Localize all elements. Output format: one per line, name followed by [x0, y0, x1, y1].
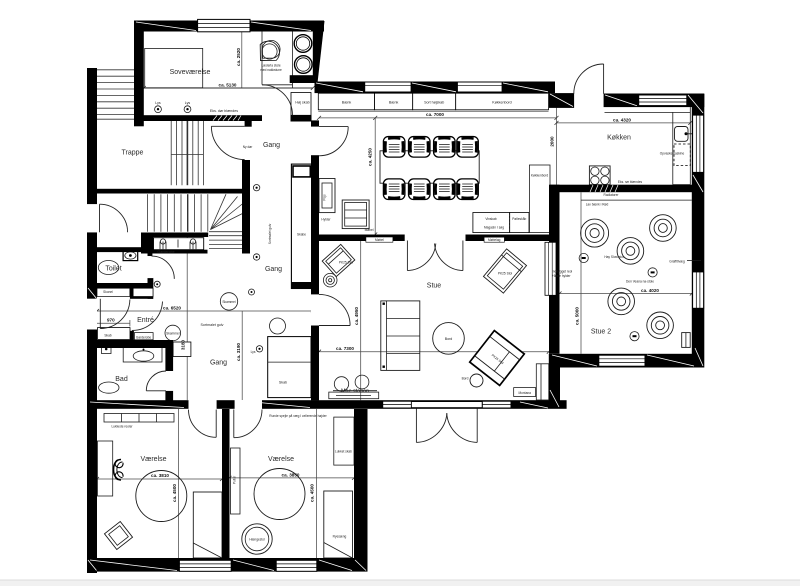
svg-text:Høj skab: Høj skab	[295, 101, 309, 105]
svg-text:2000: 2000	[550, 136, 555, 147]
svg-text:Køkken: Køkken	[607, 135, 631, 142]
svg-text:ca. 5130: ca. 5130	[219, 83, 237, 88]
svg-text:Køkkenbord: Køkkenbord	[531, 174, 548, 178]
svg-text:PK25 Stol: PK25 Stol	[498, 272, 512, 276]
svg-text:Entré: Entré	[137, 317, 154, 324]
svg-text:Hylder: Hylder	[321, 218, 331, 222]
svg-text:Magasin I søg: Magasin I søg	[484, 226, 504, 230]
svg-text:Sort højskab: Sort højskab	[424, 101, 444, 105]
svg-text:Møbel: Møbel	[375, 238, 384, 242]
svg-text:ca. 4020: ca. 4020	[641, 288, 659, 293]
svg-text:970: 970	[107, 318, 115, 323]
svg-text:Garderobe: Garderobe	[157, 250, 174, 254]
svg-text:Lukkede reoler: Lukkede reoler	[111, 425, 133, 429]
svg-text:Lys: Lys	[251, 350, 256, 354]
svg-text:Sortmalet gulv: Sortmalet gulv	[268, 223, 272, 244]
svg-text:Værelse: Værelse	[268, 456, 294, 463]
svg-text:Pejs: Pejs	[323, 194, 327, 201]
svg-text:Gang: Gang	[263, 142, 280, 149]
svg-text:Eks. rør blændes: Eks. rør blændes	[618, 180, 643, 184]
svg-text:ca. 4320: ca. 4320	[613, 117, 631, 122]
svg-text:Bad: Bad	[115, 376, 128, 383]
svg-text:Hængestol: Hængestol	[249, 538, 265, 542]
svg-text:Lukket skab: Lukket skab	[335, 450, 352, 454]
svg-text:Lys: Lys	[155, 101, 161, 105]
svg-text:Bænk: Bænk	[342, 101, 352, 105]
svg-text:Stue: Stue	[427, 283, 442, 290]
svg-text:Værelse: Værelse	[140, 456, 166, 463]
svg-text:Skammel: Skammel	[222, 300, 236, 304]
svg-text:ca. 4250: ca. 4250	[368, 148, 373, 166]
svg-text:ca. 7000: ca. 7000	[426, 112, 444, 117]
svg-text:Vinskab: Vinskab	[485, 217, 497, 221]
svg-text:Gang: Gang	[265, 266, 282, 273]
svg-text:ca. 5000: ca. 5000	[575, 307, 580, 325]
svg-text:Lys: Lys	[185, 101, 191, 105]
svg-text:Ny dør: Ny dør	[243, 145, 254, 149]
svg-text:Møbel: Møbel	[365, 228, 374, 232]
svg-text:+åbne hylder: +åbne hylder	[552, 274, 571, 278]
svg-text:Radiatorer: Radiatorer	[604, 193, 620, 197]
svg-text:Pulter: Pulter	[232, 475, 236, 484]
svg-text:Gang: Gang	[210, 360, 227, 367]
svg-text:Opvaskemaskine: Opvaskemaskine	[660, 152, 685, 156]
svg-text:Skabe: Skabe	[297, 233, 306, 237]
svg-text:Stue 2: Stue 2	[591, 329, 611, 336]
svg-text:Soveværelse: Soveværelse	[170, 69, 211, 76]
svg-text:Runde spejle på væg I celleren: Runde spejle på væg I cellerende højder	[269, 414, 327, 418]
svg-text:Toilet: Toilet	[105, 266, 121, 273]
svg-text:ca. 7300: ca. 7300	[336, 346, 354, 351]
svg-text:Pølleskåb: Pølleskåb	[512, 217, 526, 221]
svg-text:ca. 4500: ca. 4500	[309, 484, 314, 502]
svg-text:Skammel: Skammel	[166, 331, 180, 335]
svg-text:Den Veana na-stole: Den Veana na-stole	[626, 279, 654, 283]
svg-text:Indbygget reol: Indbygget reol	[552, 270, 572, 274]
svg-text:Garderobe: Garderobe	[136, 336, 151, 340]
svg-text:med nakkstune: med nakkstune	[260, 68, 282, 72]
svg-text:Bord: Bord	[445, 337, 453, 341]
svg-text:Ryesæng: Ryesæng	[333, 535, 347, 539]
svg-text:3180: 3180	[181, 339, 186, 350]
svg-text:Graffitivæg: Graffitivæg	[669, 259, 685, 263]
svg-text:Hay Slow stol: Hay Slow stol	[604, 255, 624, 259]
svg-text:Møbelag: Møbelag	[488, 238, 501, 242]
svg-text:PK25 Stol: PK25 Stol	[339, 261, 353, 265]
svg-text:ca. 4950: ca. 4950	[354, 307, 359, 325]
svg-text:Montana: Montana	[518, 391, 531, 395]
svg-text:ca. 4500: ca. 4500	[172, 484, 177, 502]
svg-text:Skab: Skab	[279, 381, 287, 385]
svg-text:Køkkenbord: Køkkenbord	[492, 101, 511, 105]
svg-text:ca. 3850: ca. 3850	[282, 473, 300, 478]
svg-text:ca. 6520: ca. 6520	[163, 306, 181, 311]
svg-text:Bænk: Bænk	[389, 101, 399, 105]
svg-text:ca. 3810: ca. 3810	[151, 473, 169, 478]
svg-text:ca. 3190: ca. 3190	[236, 343, 241, 361]
svg-text:Mac station: Mac station	[341, 389, 369, 395]
svg-text:Sortmalet gulv: Sortmalet gulv	[201, 323, 224, 327]
svg-text:Bord: Bord	[462, 377, 469, 381]
svg-text:Lav bænk i Rød: Lav bænk i Rød	[586, 202, 609, 206]
svg-text:Trappe: Trappe	[122, 150, 144, 157]
svg-text:Skab: Skab	[104, 334, 111, 338]
svg-text:Eks. dør blændes: Eks. dør blændes	[210, 109, 238, 113]
svg-text:Skonel: Skonel	[103, 290, 113, 294]
svg-text:ca. 2520: ca. 2520	[236, 48, 241, 66]
